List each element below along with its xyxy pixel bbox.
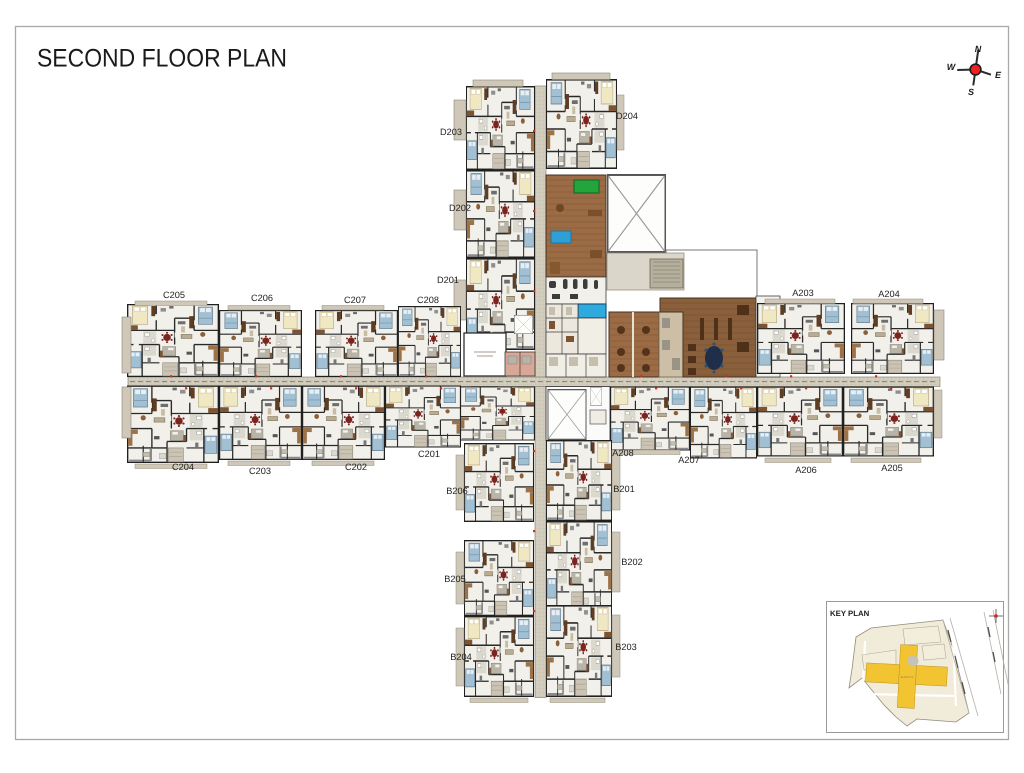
svg-text:C201: C201: [418, 449, 440, 459]
svg-text:C204: C204: [172, 462, 194, 472]
svg-text:B204: B204: [450, 652, 471, 662]
svg-text:SECOND FLOOR PLAN: SECOND FLOOR PLAN: [37, 45, 287, 73]
svg-text:S: S: [968, 87, 974, 97]
svg-text:BLOCK 02: BLOCK 02: [901, 676, 914, 679]
svg-text:C207: C207: [344, 295, 366, 305]
svg-text:D203: D203: [440, 127, 462, 137]
svg-text:N: N: [975, 44, 982, 54]
svg-text:A207: A207: [678, 455, 699, 465]
svg-text:A203: A203: [792, 288, 813, 298]
svg-text:B205: B205: [444, 574, 465, 584]
svg-text:B203: B203: [615, 642, 636, 652]
svg-text:A204: A204: [878, 289, 899, 299]
svg-text:A205: A205: [881, 463, 902, 473]
svg-text:E: E: [995, 70, 1002, 80]
svg-text:KEY PLAN: KEY PLAN: [830, 609, 870, 618]
svg-text:C205: C205: [163, 290, 185, 300]
svg-text:C206: C206: [251, 293, 273, 303]
svg-text:D202: D202: [449, 203, 471, 213]
svg-text:D204: D204: [616, 111, 638, 121]
svg-text:B206: B206: [446, 486, 467, 496]
svg-text:A206: A206: [795, 465, 816, 475]
svg-text:C208: C208: [417, 295, 439, 305]
svg-text:B202: B202: [621, 557, 642, 567]
svg-text:C203: C203: [249, 466, 271, 476]
svg-text:C202: C202: [345, 462, 367, 472]
svg-text:B201: B201: [613, 484, 634, 494]
svg-text:A208: A208: [612, 448, 633, 458]
svg-text:D201: D201: [437, 275, 459, 285]
